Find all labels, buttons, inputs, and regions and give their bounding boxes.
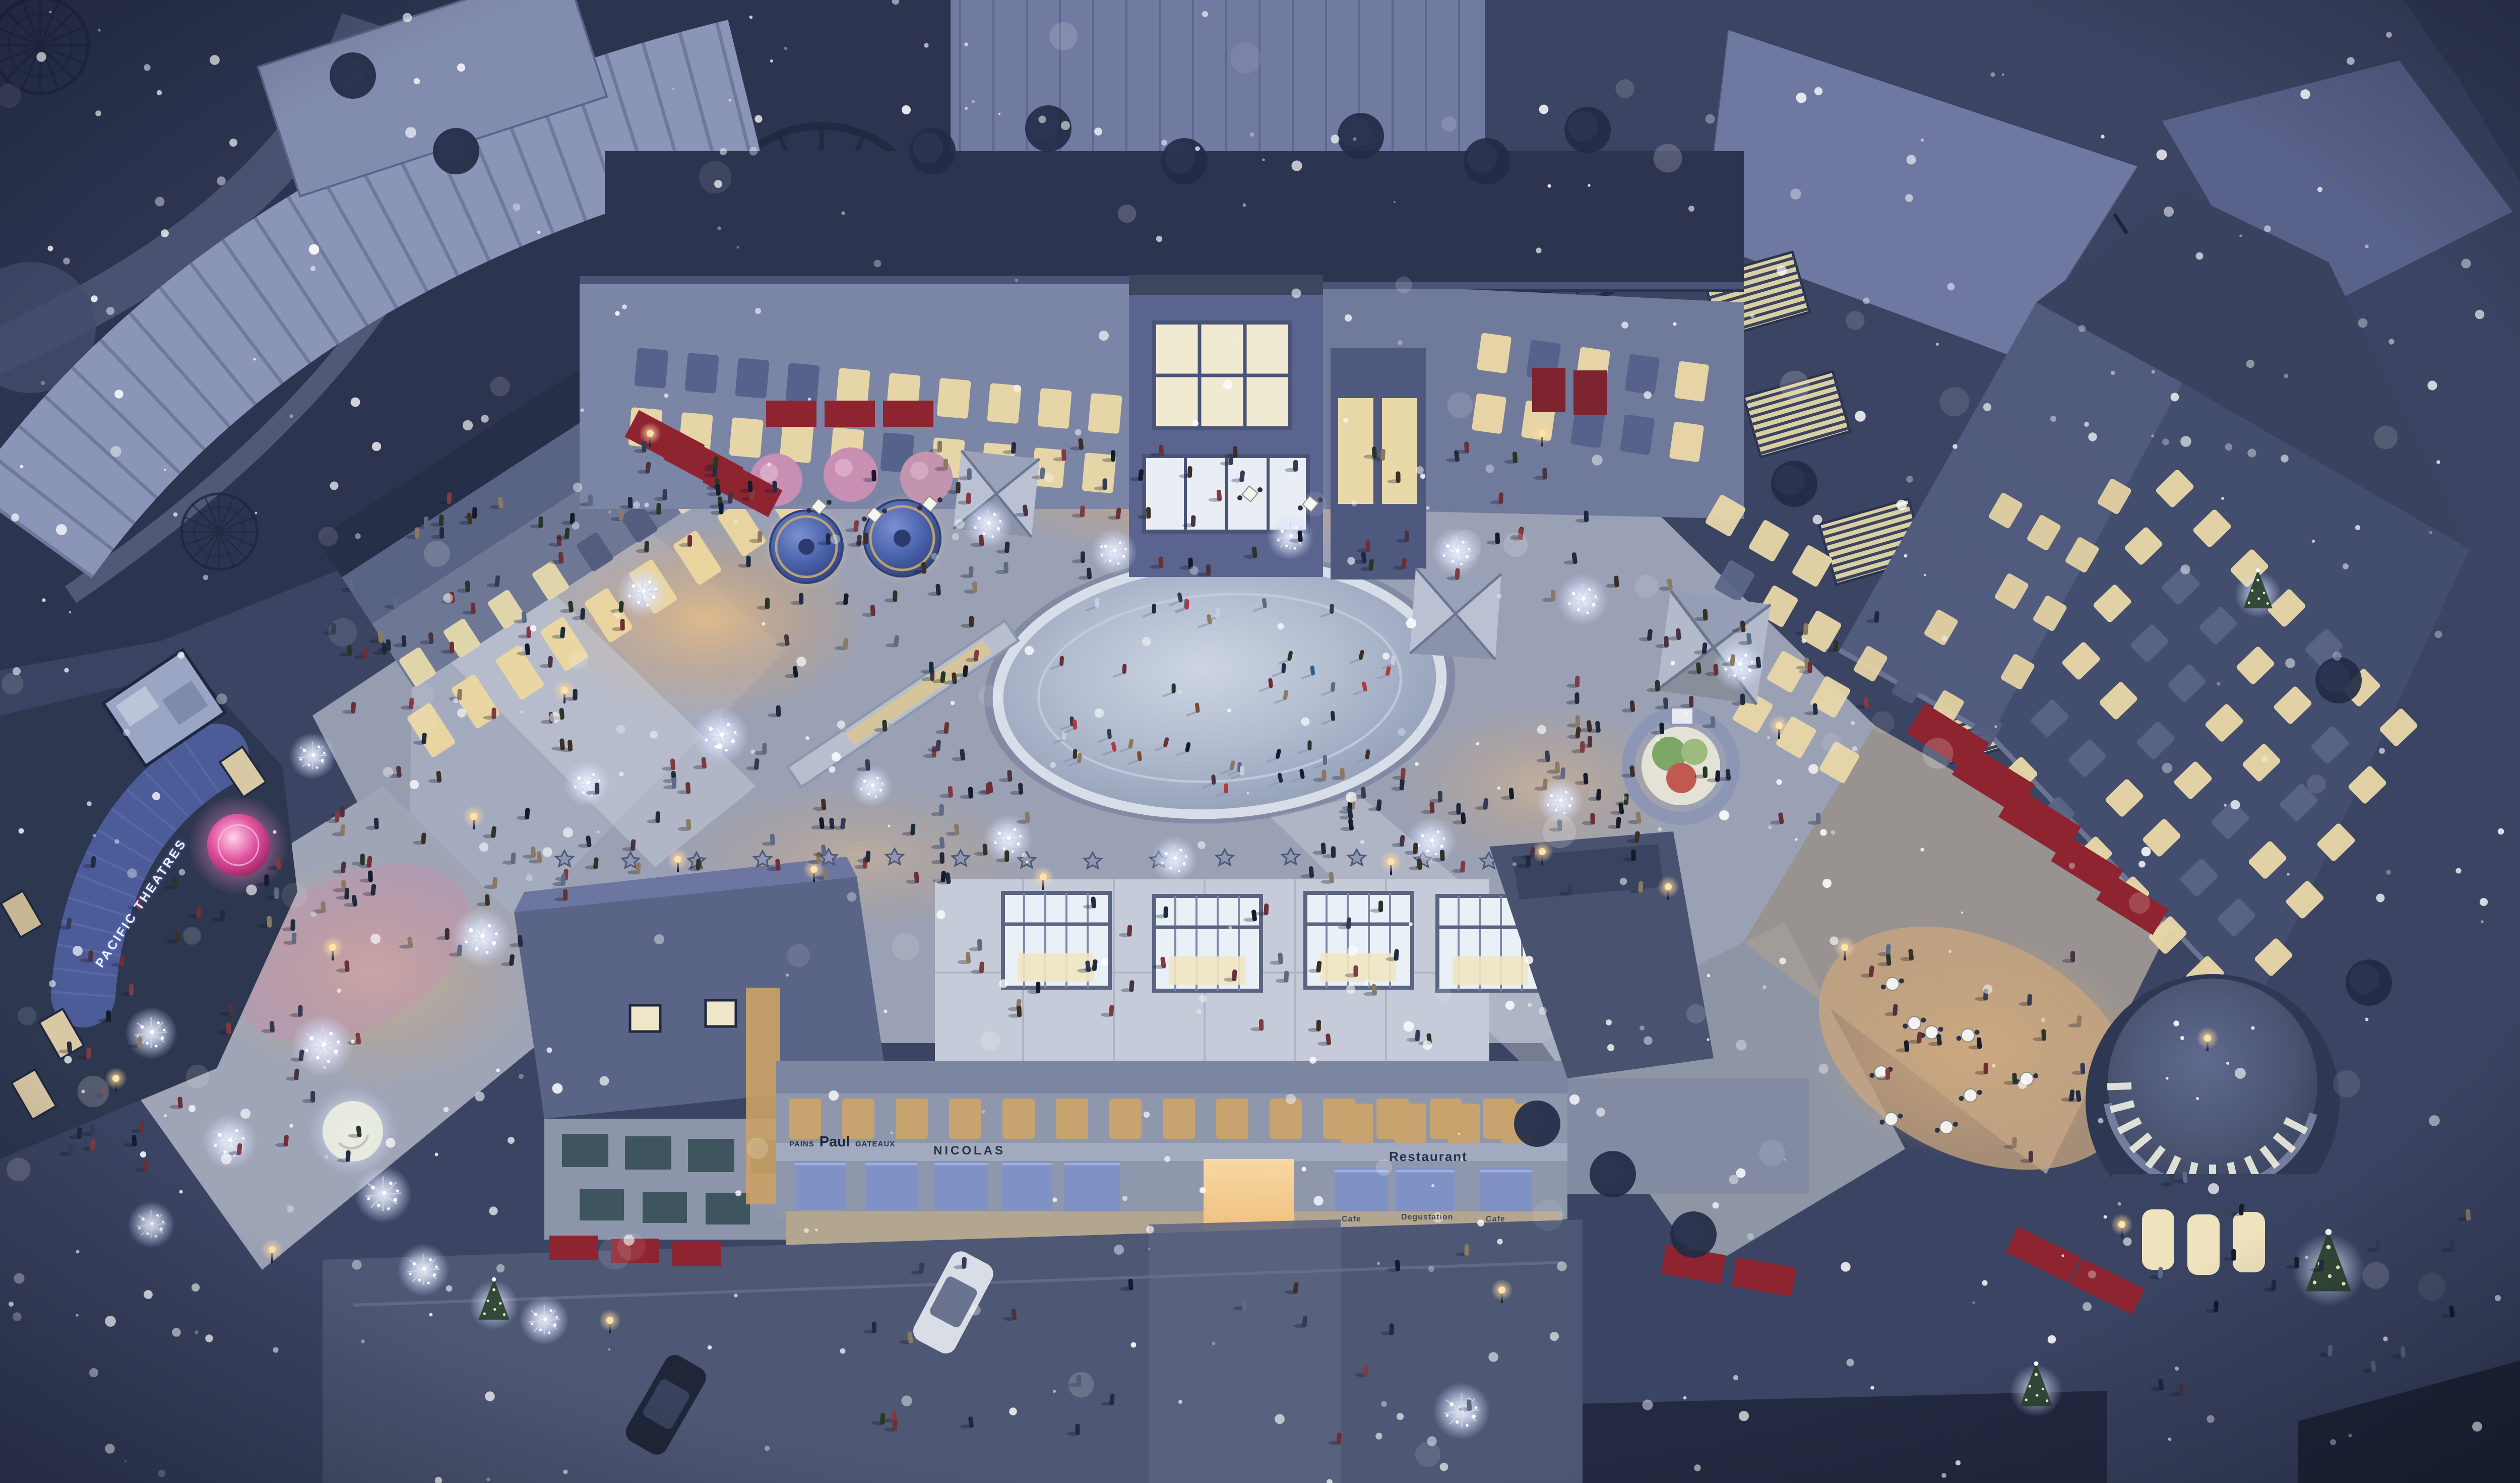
- awning-label-degustation: Degustation: [1401, 1213, 1453, 1221]
- bakery-sign-left: PAINS: [789, 1140, 814, 1148]
- plaza-night-rendering: [0, 0, 2520, 1483]
- bakery-sign: PAINS Paul GATEAUX: [789, 1135, 895, 1149]
- bakery-sign-name: Paul: [820, 1135, 850, 1149]
- restaurant-sign: Restaurant: [1389, 1150, 1468, 1163]
- awning-label-cafe-2: Cafe: [1486, 1215, 1505, 1223]
- bakery-sign-right: GATEAUX: [855, 1140, 895, 1148]
- awning-label-cafe-1: Cafe: [1342, 1215, 1361, 1223]
- wine-shop-sign: NICOLAS: [933, 1145, 1005, 1157]
- vignette: [0, 0, 2520, 1483]
